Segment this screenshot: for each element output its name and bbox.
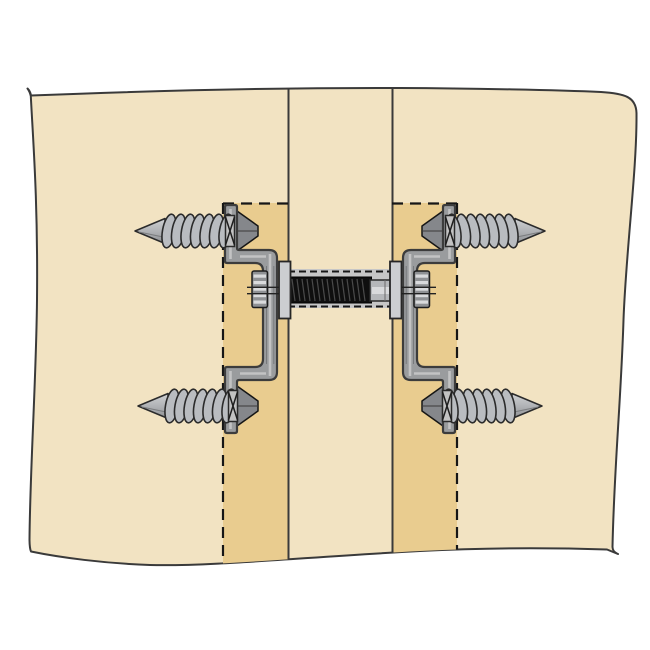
- rod-sleeve-band: [372, 287, 389, 294]
- wood-panel-group: [28, 84, 637, 565]
- flange-plate-left: [279, 262, 291, 319]
- flange-plate-right: [390, 262, 402, 319]
- connector-drawing: [0, 0, 650, 650]
- illustration-stage: [0, 0, 650, 650]
- wood-panel: [28, 88, 637, 565]
